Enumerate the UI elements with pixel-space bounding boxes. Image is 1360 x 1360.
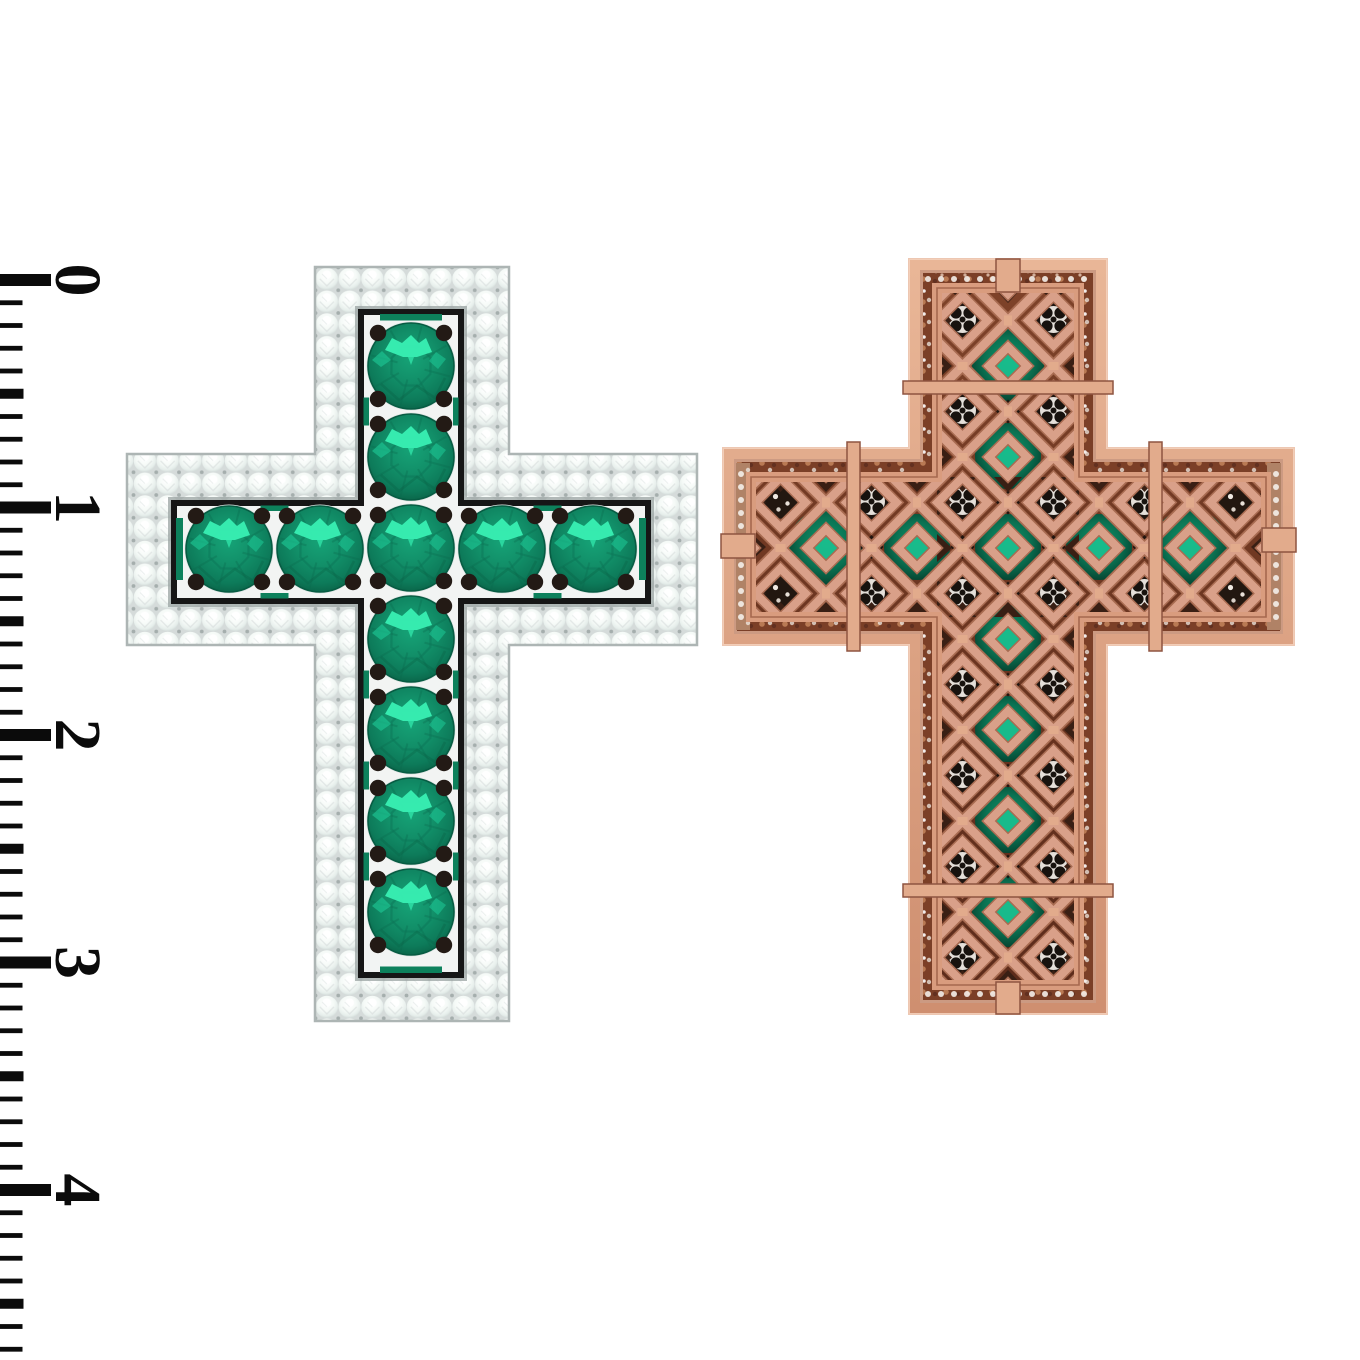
svg-text:2: 2 xyxy=(41,719,114,752)
svg-text:3: 3 xyxy=(41,946,114,979)
svg-text:1: 1 xyxy=(41,491,114,524)
svg-text:0: 0 xyxy=(41,264,114,297)
svg-text:4: 4 xyxy=(41,1174,114,1207)
